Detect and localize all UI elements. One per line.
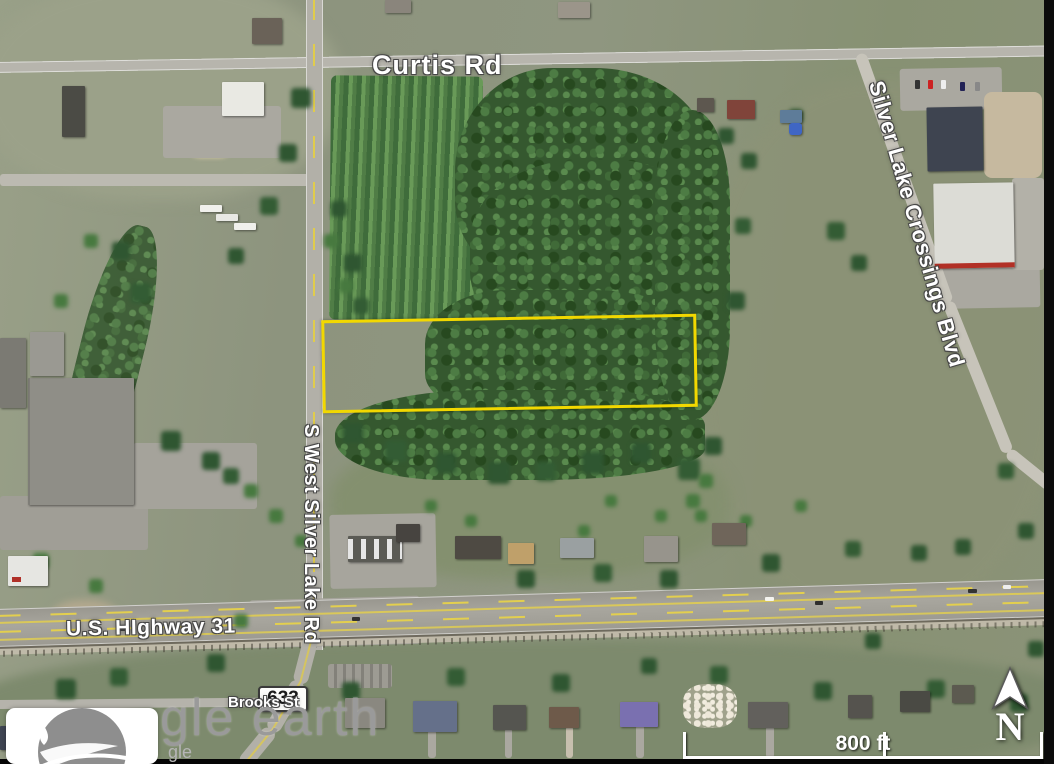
building bbox=[62, 86, 85, 137]
building bbox=[933, 182, 1014, 268]
vehicle bbox=[975, 82, 980, 91]
building bbox=[8, 556, 48, 586]
vehicle bbox=[352, 617, 360, 621]
parking-lot bbox=[328, 664, 392, 688]
road-label-highway-31: U.S. HIghway 31 bbox=[66, 615, 236, 642]
building bbox=[558, 2, 590, 18]
building bbox=[712, 523, 746, 545]
scale-tick bbox=[1040, 732, 1043, 759]
vehicle bbox=[928, 80, 933, 89]
driveway bbox=[0, 174, 318, 186]
building bbox=[644, 536, 678, 562]
google-earth-logo bbox=[6, 708, 158, 764]
image-edge bbox=[0, 759, 1054, 764]
vehicle bbox=[941, 80, 946, 89]
building bbox=[413, 701, 457, 732]
building bbox=[848, 695, 872, 718]
vehicle bbox=[815, 601, 823, 605]
trailer bbox=[200, 205, 222, 212]
sand-area bbox=[984, 92, 1042, 178]
building bbox=[222, 82, 264, 116]
building bbox=[727, 100, 755, 119]
vehicle bbox=[765, 597, 774, 601]
parking-lot bbox=[1012, 178, 1044, 270]
building bbox=[549, 707, 579, 728]
trailer bbox=[234, 223, 256, 230]
tree-cluster bbox=[0, 0, 2, 2]
vehicle bbox=[915, 80, 920, 89]
google-earth-watermark: gle earth bbox=[160, 688, 380, 748]
building bbox=[748, 702, 788, 728]
vehicle bbox=[1003, 585, 1011, 589]
scale-tick bbox=[683, 732, 686, 759]
driveway bbox=[428, 730, 436, 758]
building bbox=[780, 110, 802, 123]
google-watermark-small: gle bbox=[168, 742, 192, 763]
building bbox=[252, 18, 282, 44]
scale-label: 800 ft bbox=[836, 732, 891, 756]
building bbox=[952, 685, 974, 703]
driveway bbox=[636, 725, 644, 758]
building bbox=[396, 524, 420, 542]
driveway bbox=[505, 728, 512, 758]
parking-lot bbox=[133, 443, 257, 509]
building bbox=[697, 98, 714, 112]
building bbox=[493, 705, 526, 730]
google-earth-logo-icon bbox=[6, 708, 158, 764]
driveway bbox=[566, 726, 573, 758]
building bbox=[385, 0, 411, 13]
building bbox=[28, 378, 134, 505]
compass: N bbox=[980, 666, 1040, 744]
gas-canopy bbox=[348, 536, 402, 562]
building bbox=[560, 538, 594, 558]
road-label-silver-lake: S West Silver Lake Rd bbox=[299, 424, 322, 644]
debris-area bbox=[683, 684, 737, 728]
terrain-patch bbox=[0, 0, 340, 200]
building bbox=[900, 691, 930, 712]
image-edge bbox=[1044, 0, 1054, 764]
parcel-outline bbox=[321, 314, 698, 414]
vehicle bbox=[968, 589, 977, 593]
building bbox=[455, 536, 501, 559]
building bbox=[926, 107, 983, 172]
compass-north-label: N bbox=[980, 710, 1040, 744]
road-label-curtis: Curtis Rd bbox=[372, 50, 503, 81]
trailer bbox=[216, 214, 238, 221]
pool bbox=[789, 123, 802, 135]
building bbox=[0, 338, 26, 408]
building bbox=[30, 332, 64, 376]
building bbox=[620, 702, 658, 727]
building bbox=[508, 543, 534, 564]
vehicle bbox=[960, 82, 965, 91]
map-canvas[interactable]: Curtis Rd S West Silver Lake Rd Silver L… bbox=[0, 0, 1054, 764]
